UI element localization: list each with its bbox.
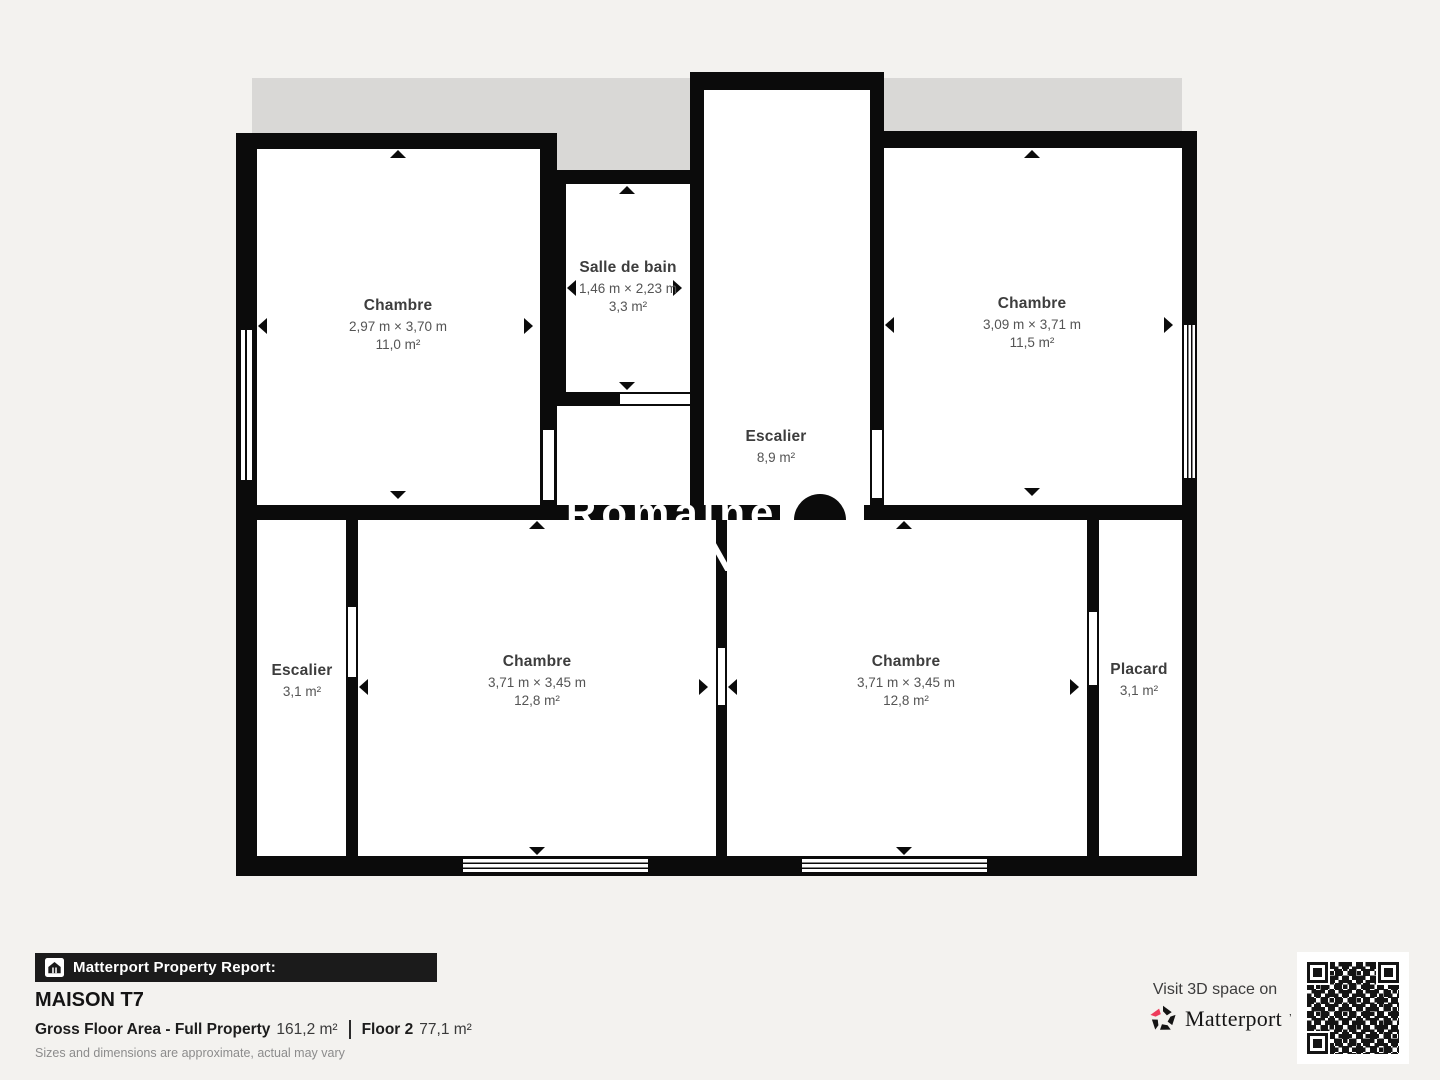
room-area: 3,3 m² xyxy=(513,298,743,316)
dimension-marker-right xyxy=(1164,317,1173,333)
room-area: 11,5 m² xyxy=(917,334,1147,352)
dimension-marker-up xyxy=(1024,150,1040,158)
room-name: Placard xyxy=(1024,661,1254,679)
window-left-wall xyxy=(241,330,252,480)
room-name: Chambre xyxy=(791,653,1021,671)
dimension-marker-left xyxy=(728,679,737,695)
room-dimensions: 3,09 m × 3,71 m xyxy=(917,316,1147,334)
outer-wall-bottom xyxy=(236,856,1197,876)
report-label: Matterport Property Report: xyxy=(73,959,276,976)
room-area: 12,8 m² xyxy=(422,692,652,710)
dimension-marker-down xyxy=(390,491,406,499)
door-opening-bottom-center xyxy=(718,648,725,705)
dimension-marker-right xyxy=(524,318,533,334)
window-bottom-right xyxy=(802,859,987,872)
house-icon xyxy=(45,958,64,977)
dimension-marker-left xyxy=(885,317,894,333)
visit-3d-label: Visit 3D space on xyxy=(1152,981,1278,999)
room-dimensions: 3,71 m × 3,45 m xyxy=(791,674,1021,692)
room-name: Chambre xyxy=(422,653,652,671)
room-label-escalier-haut: Escalier 8,9 m² xyxy=(661,428,891,467)
room-name: Escalier xyxy=(187,662,417,680)
room-label-placard: Placard 3,1 m² xyxy=(1024,661,1254,700)
gray-backdrop-notch xyxy=(557,133,690,172)
dimension-marker-up xyxy=(896,521,912,529)
room-area: 12,8 m² xyxy=(791,692,1021,710)
room-name: Escalier xyxy=(661,428,891,446)
room-dimensions: 3,71 m × 3,45 m xyxy=(422,674,652,692)
gfa-label: Gross Floor Area - Full Property xyxy=(35,1021,270,1039)
dimension-marker-down xyxy=(896,847,912,855)
dimension-marker-up xyxy=(529,521,545,529)
outer-wall-top-right xyxy=(870,131,1197,148)
door-opening-sdb xyxy=(620,394,690,404)
report-header-bar: Matterport Property Report: xyxy=(35,953,437,982)
room-name: Chambre xyxy=(283,297,513,315)
dimension-marker-right xyxy=(699,679,708,695)
dimension-marker-down xyxy=(529,847,545,855)
room-label-salle-de-bain: Salle de bain 1,46 m × 2,23 m 3,3 m² xyxy=(513,259,743,315)
watermark-logo-circle xyxy=(770,478,874,520)
qr-finder-top-right xyxy=(1378,962,1399,983)
room-label-chambre-bottom-right: Chambre 3,71 m × 3,45 m 12,8 m² xyxy=(791,653,1021,709)
qr-code xyxy=(1297,952,1409,1064)
dimension-marker-down xyxy=(1024,488,1040,496)
floor-label: Floor 2 xyxy=(362,1021,414,1039)
matterport-floorplan-report: Romaines N Chambre 2,97 m × 3,70 m xyxy=(0,0,1440,1080)
window-right-wall xyxy=(1184,325,1195,478)
room-label-chambre-top-left: Chambre 2,97 m × 3,70 m 11,0 m² xyxy=(283,297,513,353)
matterport-logo-icon xyxy=(1148,1004,1178,1034)
room-area: 8,9 m² xyxy=(661,449,891,467)
window-bottom-left xyxy=(463,859,648,872)
room-dimensions: 1,46 m × 2,23 m xyxy=(513,280,743,298)
door-opening-chambre-tl xyxy=(543,430,554,500)
dimension-marker-left xyxy=(258,318,267,334)
matterport-wordmark: Matterport xyxy=(1185,1006,1282,1032)
floor-area-line: Gross Floor Area - Full Property 161,2 m… xyxy=(35,1020,472,1039)
outer-wall-right xyxy=(1182,131,1197,876)
room-label-chambre-bottom-left: Chambre 3,71 m × 3,45 m 12,8 m² xyxy=(422,653,652,709)
outer-wall-top-left xyxy=(236,133,557,149)
dimension-marker-down xyxy=(619,382,635,390)
disclaimer-text: Sizes and dimensions are approximate, ac… xyxy=(35,1046,345,1060)
room-name: Chambre xyxy=(917,295,1147,313)
room-label-chambre-top-right: Chambre 3,09 m × 3,71 m 11,5 m² xyxy=(917,295,1147,351)
watermark-letter: N xyxy=(703,528,736,582)
qr-finder-bottom-left xyxy=(1307,1033,1328,1054)
matterport-logo-link[interactable]: Matterport ʼ xyxy=(1148,1004,1292,1034)
floor-value: 77,1 m² xyxy=(419,1021,472,1039)
room-label-escalier-bas: Escalier 3,1 m² xyxy=(187,662,417,701)
room-dimensions: 2,97 m × 3,70 m xyxy=(283,318,513,336)
trademark-tick: ʼ xyxy=(1289,1013,1291,1025)
property-title: MAISON T7 xyxy=(35,989,144,1012)
room-area: 3,1 m² xyxy=(1024,682,1254,700)
dimension-marker-up xyxy=(619,186,635,194)
room-name: Salle de bain xyxy=(513,259,743,277)
separator xyxy=(349,1020,351,1039)
wall-sdb-top xyxy=(552,170,703,184)
dimension-marker-up xyxy=(390,150,406,158)
gfa-value: 161,2 m² xyxy=(276,1021,337,1039)
wall-corridor-top xyxy=(690,72,884,90)
qr-finder-top-left xyxy=(1307,962,1328,983)
wall-middle: Romaines xyxy=(236,505,1197,520)
room-area: 11,0 m² xyxy=(283,336,513,354)
room-area: 3,1 m² xyxy=(187,683,417,701)
